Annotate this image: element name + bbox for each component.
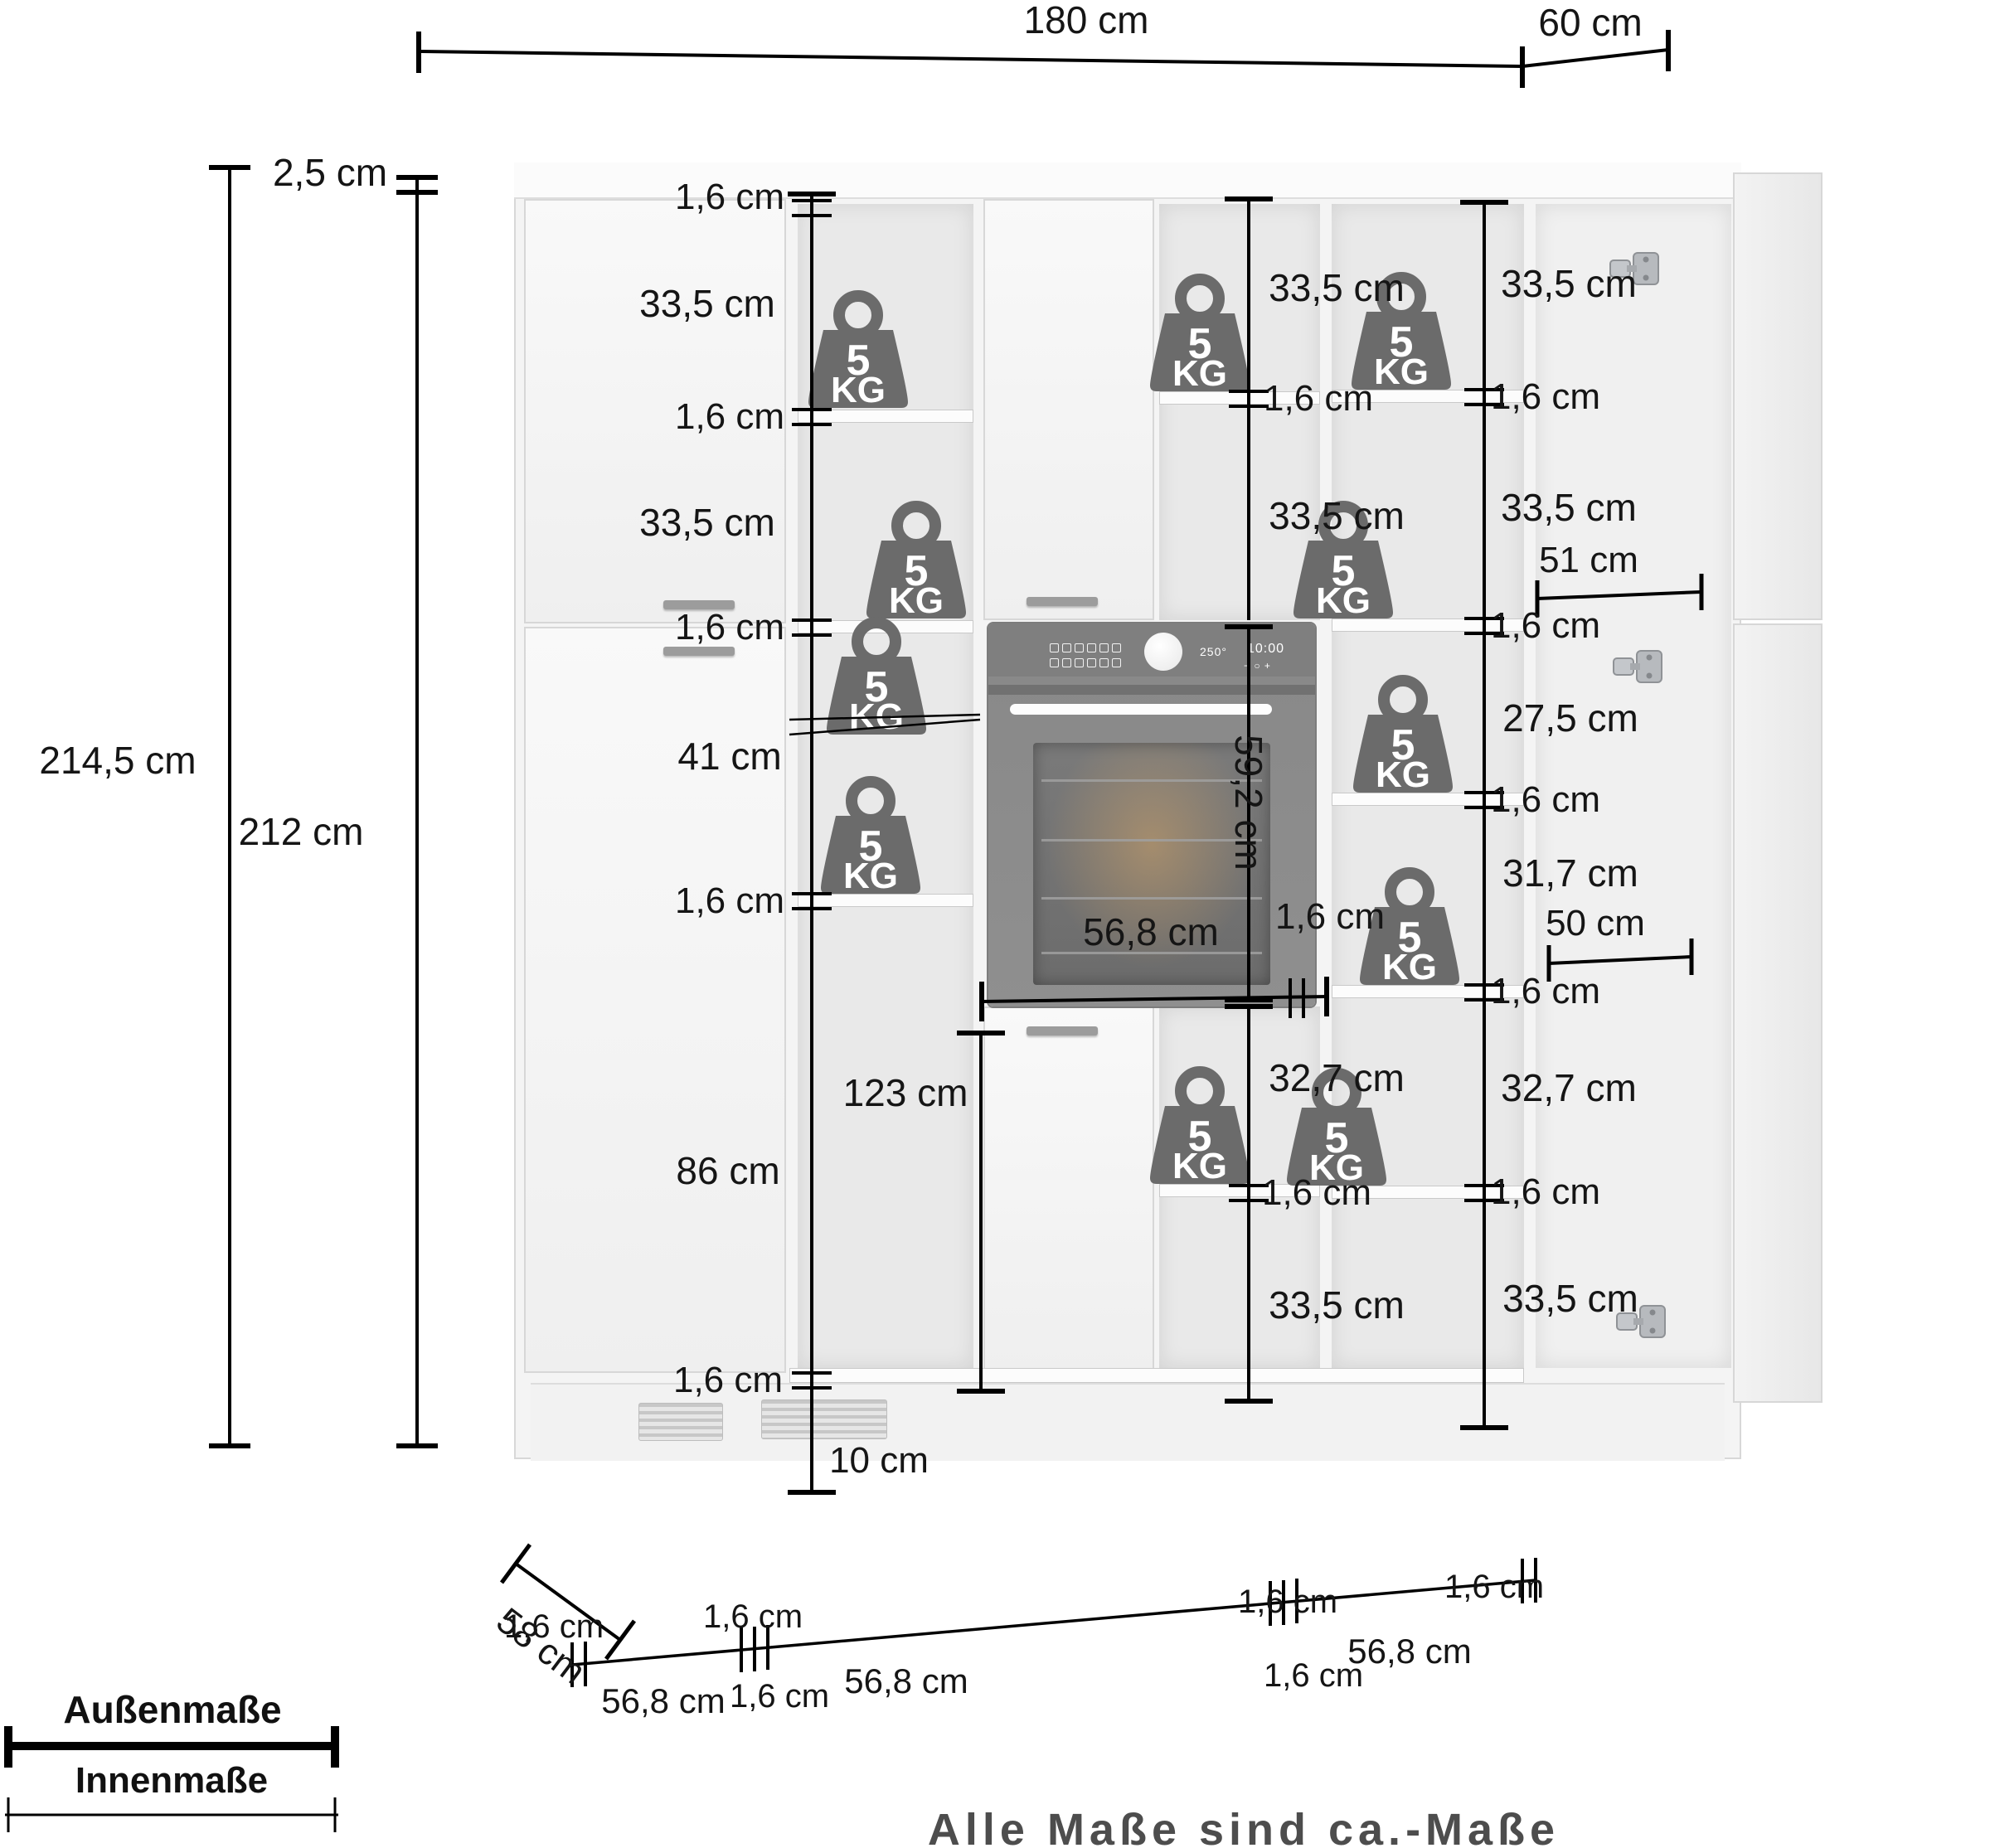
dimension-label: 123 cm	[843, 1074, 968, 1112]
ventilation-grille	[638, 1403, 723, 1441]
dimension-label: 1,6 cm	[1262, 1175, 1371, 1211]
dimension-label: 33,5 cm	[1269, 269, 1405, 307]
weight-capacity-icon: 5KG	[817, 769, 925, 894]
door-handle	[1027, 597, 1098, 606]
dimension-label: 32,7 cm	[1501, 1069, 1637, 1107]
oven-function-button	[1087, 643, 1096, 652]
dimension-label: 33,5 cm	[639, 284, 775, 323]
dimension-label: 33,5 cm	[1502, 1279, 1638, 1317]
dimension-label: 86 cm	[676, 1152, 779, 1190]
dimension-label: 1,6 cm	[1275, 899, 1385, 935]
svg-text:KG: KG	[1172, 1146, 1227, 1184]
dimension-label: 33,5 cm	[1501, 264, 1637, 303]
cabinet-dimension-diagram: 250° 10:00 − ○ + 5KG5KG5KG5KG5KG5KG5KG5K…	[0, 0, 1990, 1848]
dimension-label: 1,6 cm	[1491, 1174, 1600, 1210]
dimension-label: 1,6 cm	[1491, 973, 1600, 1010]
svg-text:KG: KG	[849, 696, 904, 735]
dimension-label: 33,5 cm	[1269, 1286, 1405, 1324]
oven-function-button	[1099, 658, 1109, 667]
dimension-label: 56,8 cm	[601, 1684, 725, 1719]
dimension-label: 50 cm	[1546, 905, 1645, 942]
ventilation-grille	[761, 1399, 887, 1439]
oven-function-button	[1050, 658, 1059, 667]
svg-text:KG: KG	[1172, 353, 1227, 391]
dimension-label: 59,2 cm	[1230, 735, 1268, 871]
oven-clock-controls: − ○ +	[1244, 660, 1271, 672]
oven-time-display: 10:00	[1247, 642, 1284, 657]
dimension-label: 1,6 cm	[1491, 608, 1600, 644]
dimension-label: 33,5 cm	[639, 503, 775, 541]
oven-function-button	[1087, 658, 1096, 667]
dimension-label: 1,6 cm	[1444, 1570, 1544, 1603]
weight-capacity-icon: 5KG	[1146, 1060, 1254, 1184]
dimension-label: 33,5 cm	[1269, 497, 1405, 535]
oven-temperature-display: 250°	[1200, 645, 1227, 658]
dimension-label: 214,5 cm	[39, 741, 196, 779]
dimension-label: 1,6 cm	[675, 399, 784, 435]
dimension-label: 1,6 cm	[675, 179, 784, 216]
dimension-label: 1,6 cm	[703, 1600, 803, 1633]
door-handle	[1027, 1026, 1098, 1036]
dimension-label: 1,6 cm	[730, 1680, 829, 1713]
door-hinge-icon	[1612, 647, 1665, 686]
cabinet-bottom-panel	[789, 1368, 1524, 1383]
svg-text:KG: KG	[843, 856, 898, 894]
dimension-label: 41 cm	[677, 737, 781, 775]
dimension-label: 1,6 cm	[673, 1362, 783, 1399]
dimension-label: 56,8 cm	[844, 1664, 968, 1699]
dimension-label: 212 cm	[239, 812, 364, 851]
oven-rack	[1041, 897, 1262, 900]
dimension-label: 31,7 cm	[1502, 854, 1638, 892]
svg-text:KG: KG	[1374, 352, 1429, 390]
door-handle	[663, 647, 735, 656]
shelf	[798, 894, 973, 907]
middle-lower-door	[983, 1006, 1154, 1373]
weight-capacity-icon: 5KG	[1349, 668, 1457, 793]
dimension-label: 51 cm	[1539, 542, 1638, 579]
weight-capacity-icon: 5KG	[862, 494, 970, 618]
oven-function-button	[1099, 643, 1109, 652]
svg-text:KG: KG	[1376, 754, 1430, 793]
weight-capacity-icon: 5KG	[804, 284, 912, 408]
dimension-label: 1,6 cm	[675, 883, 784, 919]
dimension-label: 56,8 cm	[1347, 1634, 1471, 1669]
oven-function-button	[1075, 658, 1084, 667]
weight-capacity-icon: 5KG	[1146, 267, 1254, 391]
dimension-label: 2,5 cm	[273, 153, 387, 192]
oven-handle	[988, 685, 1315, 695]
oven-function-button	[1112, 658, 1121, 667]
svg-text:KG: KG	[831, 370, 886, 408]
oven-light-bar	[1010, 704, 1272, 715]
svg-text:KG: KG	[1382, 947, 1437, 985]
dimension-label: 10 cm	[829, 1443, 929, 1479]
oven-function-button	[1050, 643, 1059, 652]
dimension-label: 1,6 cm	[1238, 1585, 1337, 1618]
svg-text:KG: KG	[1316, 580, 1371, 618]
dimension-label: 1,6 cm	[675, 609, 784, 646]
dimension-label: 32,7 cm	[1269, 1059, 1405, 1097]
legend-outer-dimensions-label: Außenmaße	[63, 1687, 281, 1732]
dimension-label: 33,5 cm	[1501, 488, 1637, 526]
shelf	[798, 410, 973, 423]
dimension-label: 180 cm	[1024, 1, 1149, 39]
dimension-label: 60 cm	[1538, 3, 1642, 41]
footer-note: Alle Maße sind ca.-Maße	[928, 1804, 1560, 1848]
dimension-label: 56,8 cm	[1083, 913, 1219, 951]
oven-knob	[1144, 633, 1182, 671]
weight-capacity-icon: 5KG	[823, 610, 930, 735]
oven-function-button	[1112, 643, 1121, 652]
dimension-label: 1,6 cm	[1264, 381, 1373, 417]
right-open-door-upper	[1733, 172, 1823, 620]
dimension-label: 1,6 cm	[1491, 782, 1600, 818]
oven-function-button	[1062, 658, 1071, 667]
dimension-label: 1,6 cm	[1491, 379, 1600, 415]
middle-upper-door	[983, 199, 1154, 620]
legend-inner-dimensions-label: Innenmaße	[75, 1760, 268, 1802]
right-open-door-lower	[1733, 623, 1823, 1403]
oven-function-button	[1075, 643, 1084, 652]
dimension-label: 27,5 cm	[1502, 699, 1638, 737]
oven-function-button	[1062, 643, 1071, 652]
